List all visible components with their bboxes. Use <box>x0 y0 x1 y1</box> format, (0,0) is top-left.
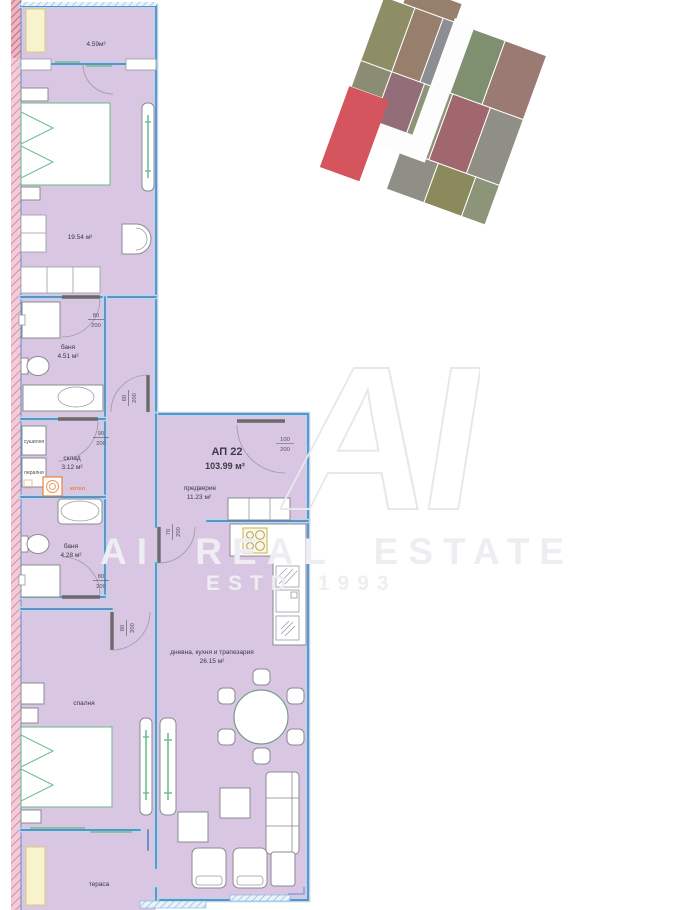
svg-text:200: 200 <box>130 623 136 633</box>
room-name: баня <box>64 542 79 550</box>
svg-text:200: 200 <box>96 584 106 590</box>
bathtub <box>23 385 103 411</box>
side-table <box>271 852 295 886</box>
boiler-label: котел <box>70 486 86 492</box>
svg-text:200: 200 <box>96 441 106 447</box>
floor-plan: 80 200 60 200 90 200 100 200 70 200 80 2… <box>0 0 693 910</box>
svg-text:200: 200 <box>91 323 101 329</box>
svg-text:100: 100 <box>280 437 290 443</box>
apartment-area: 103.99 м² <box>205 461 245 471</box>
coffee-table <box>178 812 208 842</box>
apartment-id: АП 22 <box>212 446 243 458</box>
room-name: дневна, кухня и трапезария <box>170 649 254 656</box>
wardrobe <box>140 718 152 815</box>
stove <box>243 528 267 553</box>
room-area: 4.51 м² <box>57 353 79 360</box>
bed <box>21 88 110 200</box>
svg-text:60: 60 <box>122 395 128 401</box>
entry-closet <box>228 498 290 520</box>
room-name: склад <box>63 455 81 462</box>
coffee-table <box>220 788 250 818</box>
armchair <box>233 848 267 888</box>
room-name: предверие <box>184 485 217 492</box>
exterior-wall-cap <box>11 0 21 58</box>
appliance-label: пералня <box>24 470 44 476</box>
desk-chair <box>122 224 151 254</box>
dishwasher <box>276 590 299 612</box>
sofa <box>266 772 299 854</box>
toilet <box>21 357 49 376</box>
floor-plan-page: 80 200 60 200 90 200 100 200 70 200 80 2… <box>0 0 693 910</box>
kitchen-sink <box>276 566 299 587</box>
wardrobe <box>160 718 176 815</box>
bathtub-oval <box>58 499 102 524</box>
room-area: 4.28 м² <box>60 552 82 559</box>
site-plan <box>320 0 554 227</box>
svg-text:90: 90 <box>98 431 104 437</box>
wardrobe <box>142 103 154 191</box>
room-name: спалня <box>73 700 95 707</box>
svg-text:80: 80 <box>98 574 104 580</box>
room-area: 4.59м² <box>86 41 106 48</box>
svg-text:70: 70 <box>166 529 172 535</box>
bathroom-sink <box>19 565 60 597</box>
room-name: баня <box>61 343 76 351</box>
planter-box <box>26 9 45 52</box>
svg-text:200: 200 <box>280 447 290 453</box>
svg-text:200: 200 <box>176 527 182 537</box>
room-area: 19.54 м² <box>68 234 94 241</box>
planter-box <box>26 847 45 905</box>
room-name: тераса <box>89 881 110 888</box>
exterior-wall <box>11 0 21 910</box>
room-area: 26.15 м² <box>200 658 226 665</box>
room-area: 11.23 м² <box>187 494 212 501</box>
armchair <box>192 848 226 888</box>
svg-text:80: 80 <box>120 625 126 631</box>
svg-text:80: 80 <box>93 313 99 319</box>
fridge <box>276 616 299 640</box>
svg-text:200: 200 <box>132 393 138 403</box>
appliance-label: сушилня <box>24 439 44 445</box>
toilet <box>21 535 49 554</box>
bathroom-sink <box>19 302 60 338</box>
room-area: 3.12 м² <box>61 464 83 471</box>
